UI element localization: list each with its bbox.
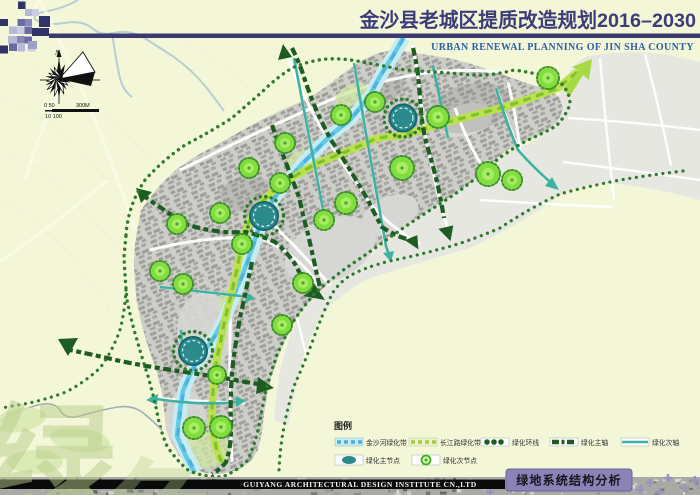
svg-text:绿化环线: 绿化环线 <box>512 438 539 447</box>
svg-text:金沙河绿化带: 金沙河绿化带 <box>366 438 407 447</box>
svg-text:绿化次轴: 绿化次轴 <box>652 438 679 447</box>
svg-text:GUIYANG ARCHITECTURAL DESIGN I: GUIYANG ARCHITECTURAL DESIGN INSTITUTE C… <box>243 480 476 489</box>
svg-text:绿化主节点: 绿化主节点 <box>366 456 400 465</box>
svg-text:绿化次节点: 绿化次节点 <box>443 456 477 465</box>
svg-text:10 100: 10 100 <box>45 114 62 120</box>
svg-text:N: N <box>54 49 60 57</box>
svg-text:图例: 图例 <box>334 420 352 431</box>
svg-text:300M: 300M <box>76 103 90 109</box>
svg-text:长江路绿化带: 长江路绿化带 <box>440 438 481 447</box>
svg-text:0 50: 0 50 <box>44 103 55 109</box>
svg-text:金沙县老城区提质改造规划2016–2030: 金沙县老城区提质改造规划2016–2030 <box>359 9 696 32</box>
svg-text:URBAN RENEWAL PLANNING OF JIN: URBAN RENEWAL PLANNING OF JIN SHA COUNTY <box>431 42 694 53</box>
svg-text:绿化主轴: 绿化主轴 <box>581 438 608 447</box>
svg-text:绿地系统结构分析: 绿地系统结构分析 <box>516 473 622 488</box>
svg-text:色: 色 <box>96 450 226 495</box>
